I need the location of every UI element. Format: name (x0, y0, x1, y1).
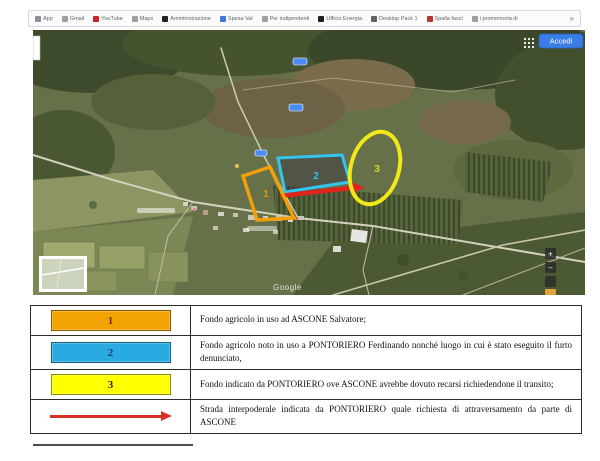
area-3-label: 3 (374, 164, 380, 175)
bookmark-label: Ufficio Energia (326, 16, 362, 22)
bookmark-item[interactable]: Maps (132, 16, 153, 22)
doc-icon (220, 16, 226, 22)
satellite-map[interactable]: 2 1 3 Accedi Google + (33, 30, 585, 295)
bookmark-item[interactable]: i promemoria di (472, 16, 518, 22)
doc-icon (427, 16, 433, 22)
legend-description: Fondo indicato da PONTORIERO ove ASCONE … (191, 369, 581, 399)
swatch-area-2: 2 (51, 342, 171, 363)
doc-icon (371, 16, 377, 22)
bookmark-item[interactable]: Spesa Val (220, 16, 253, 22)
bookmark-label: i promemoria di (480, 16, 518, 22)
area-2-label: 2 (313, 171, 319, 182)
bookmark-item[interactable]: Amministrazione (162, 16, 211, 22)
bookmark-label: Spesa Val (228, 16, 253, 22)
fullscreen-button[interactable] (545, 276, 556, 287)
bookmark-item[interactable]: App (35, 16, 53, 22)
bookmark-label: Maps (140, 16, 153, 22)
collapsed-panel[interactable] (33, 36, 40, 60)
gmail-icon (62, 16, 68, 22)
maps-icon (132, 16, 138, 22)
bookmark-item[interactable]: Gmail (62, 16, 84, 22)
apps-grid-icon (35, 16, 41, 22)
bookmark-label: Gmail (70, 16, 84, 22)
footnote-rule (33, 444, 193, 446)
legend-key-cell: 3 (31, 369, 191, 399)
pegman-button[interactable] (545, 289, 556, 295)
map-inset-toggle[interactable] (39, 256, 87, 292)
bookmark-label: Desktop Pack 1 (379, 16, 418, 22)
svg-text:+: + (548, 250, 553, 259)
bookmarks-bar: App Gmail YouTube Maps Amministrazione S… (28, 10, 581, 27)
legend-table: 1 Fondo agricolo in uso ad ASCONE Salvat… (30, 305, 582, 434)
bookmark-label: Per indipendenti (270, 16, 310, 22)
zoom-in-button[interactable]: + (545, 248, 556, 259)
apps-grid-icon[interactable] (524, 38, 534, 48)
bookmarks-overflow-chevron-icon[interactable]: » (570, 15, 574, 23)
signin-label: Accedi (550, 37, 573, 46)
letter-icon (162, 16, 168, 22)
svg-text:−: − (548, 264, 553, 273)
red-arrow-icon (50, 415, 172, 418)
bookmark-label: Amministrazione (170, 16, 211, 22)
legend-description: Strada interpoderale indicata da PONTORI… (191, 399, 581, 433)
swatch-area-1: 1 (51, 310, 171, 331)
swatch-number: 2 (108, 347, 114, 359)
swatch-area-3: 3 (51, 374, 171, 395)
bookmark-label: App (43, 16, 53, 22)
doc-icon (262, 16, 268, 22)
letter-icon (318, 16, 324, 22)
zoom-out-button[interactable]: − (545, 262, 556, 273)
legend-key-cell (31, 399, 191, 433)
legend-key-cell: 2 (31, 335, 191, 369)
youtube-icon (93, 16, 99, 22)
plus-icon (472, 16, 478, 22)
legend-key-cell: 1 (31, 306, 191, 335)
swatch-number: 1 (108, 315, 114, 327)
bookmark-item[interactable]: Spalla fasci (427, 16, 463, 22)
legend-description: Fondo agricolo in uso ad ASCONE Salvator… (191, 306, 581, 335)
bookmark-label: Spalla fasci (435, 16, 463, 22)
legend-description: Fondo agricolo noto in uso a PONTORIERO … (191, 335, 581, 369)
bookmark-item[interactable]: Desktop Pack 1 (371, 16, 418, 22)
area-1-label: 1 (263, 189, 269, 200)
swatch-number: 3 (108, 379, 114, 391)
bookmark-item[interactable]: Per indipendenti (262, 16, 310, 22)
bookmark-item[interactable]: Ufficio Energia (318, 16, 362, 22)
google-watermark: Google (273, 283, 302, 292)
signin-button[interactable]: Accedi (539, 34, 583, 48)
bookmark-item[interactable]: YouTube (93, 16, 123, 22)
bookmark-label: YouTube (101, 16, 123, 22)
